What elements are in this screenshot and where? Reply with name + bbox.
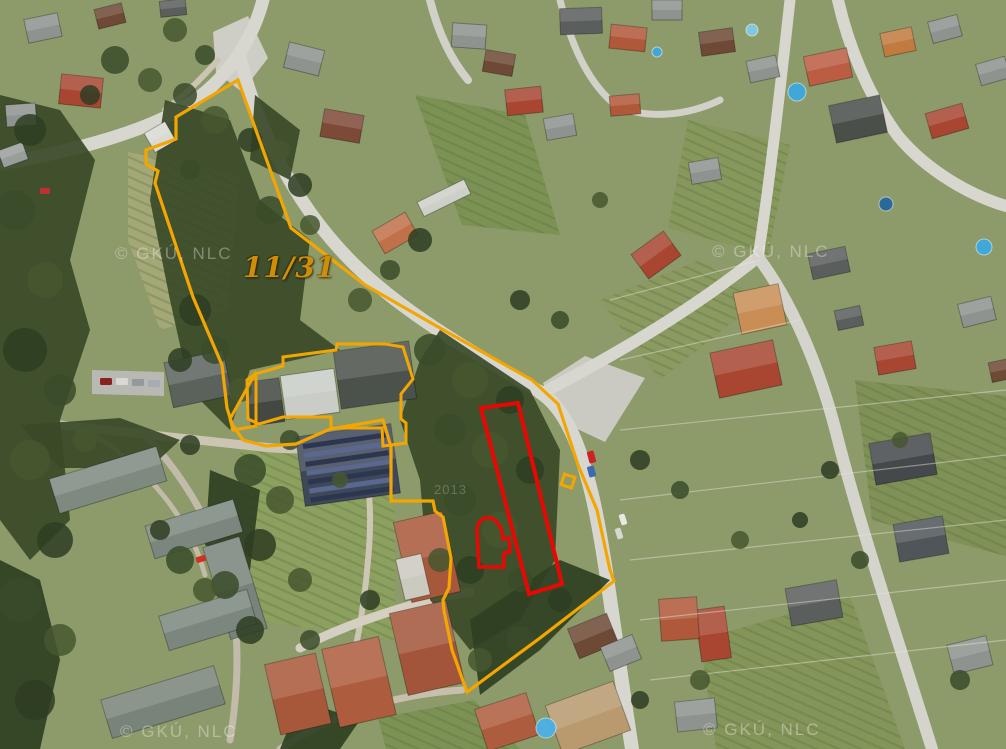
map-viewport[interactable]: 11/31 © GKÚ, NLC © GKÚ, NLC © GKÚ, NLC ©… bbox=[0, 0, 1006, 749]
aerial-map-canvas[interactable] bbox=[0, 0, 1006, 749]
aerial-basemap bbox=[0, 0, 1006, 749]
